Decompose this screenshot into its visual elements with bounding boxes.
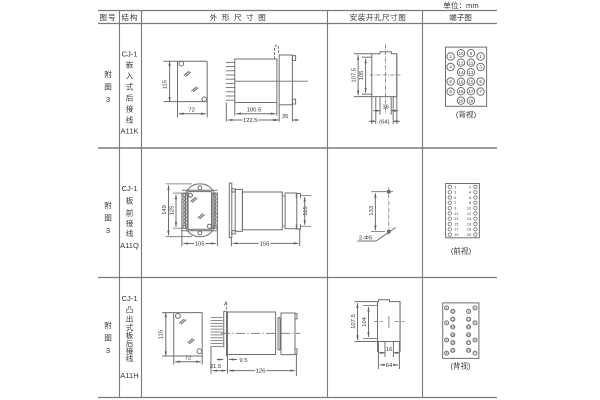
svg-text:CJ-1: CJ-1 <box>121 184 137 193</box>
svg-text:4: 4 <box>469 191 471 195</box>
svg-text:前: 前 <box>126 208 134 218</box>
svg-text:100.5: 100.5 <box>247 108 262 114</box>
svg-text:107.5: 107.5 <box>351 313 357 328</box>
svg-text:14: 14 <box>451 325 455 329</box>
svg-text:CJ-1: CJ-1 <box>121 294 137 303</box>
svg-text:入: 入 <box>126 72 134 81</box>
svg-text:16: 16 <box>386 347 393 353</box>
svg-text:2-Φ5: 2-Φ5 <box>359 235 373 241</box>
svg-text:10: 10 <box>451 310 455 314</box>
svg-text:72: 72 <box>188 108 195 114</box>
svg-text:6: 6 <box>469 196 471 200</box>
svg-text:(前视): (前视) <box>451 246 472 256</box>
svg-text:附: 附 <box>104 321 112 330</box>
svg-text:A11K: A11K <box>120 127 138 136</box>
svg-text:12: 12 <box>459 60 464 65</box>
svg-text:(64): (64) <box>379 119 390 125</box>
svg-text:10: 10 <box>459 51 464 56</box>
svg-text:13: 13 <box>468 70 473 75</box>
svg-text:接: 接 <box>126 218 134 228</box>
svg-text:线: 线 <box>126 228 134 238</box>
svg-text:端子图: 端子图 <box>449 12 472 22</box>
svg-text:31.5: 31.5 <box>210 364 222 370</box>
svg-text:接: 接 <box>126 104 134 114</box>
svg-text:CJ-1: CJ-1 <box>121 50 137 59</box>
svg-text:图: 图 <box>104 214 112 223</box>
svg-text:结构: 结构 <box>121 12 138 22</box>
svg-text:10: 10 <box>467 207 471 211</box>
svg-text:3: 3 <box>106 346 110 355</box>
svg-text:18: 18 <box>451 341 455 345</box>
svg-text:15: 15 <box>454 222 458 226</box>
svg-text:附: 附 <box>104 70 112 79</box>
svg-text:149: 149 <box>162 205 168 215</box>
svg-text:3: 3 <box>454 191 456 195</box>
svg-text:19: 19 <box>468 98 473 103</box>
svg-text:72: 72 <box>185 355 192 361</box>
svg-text:11: 11 <box>467 317 470 321</box>
svg-text:107.5: 107.5 <box>352 67 358 82</box>
svg-text:12: 12 <box>467 212 471 216</box>
svg-text:156: 156 <box>260 242 271 248</box>
svg-text:5: 5 <box>454 196 456 200</box>
svg-text:11: 11 <box>469 60 474 65</box>
svg-text:附: 附 <box>104 201 112 210</box>
svg-text:16: 16 <box>382 104 389 110</box>
svg-text:19: 19 <box>467 349 471 353</box>
svg-text:105: 105 <box>359 70 365 81</box>
svg-text:17: 17 <box>467 341 471 345</box>
svg-text:凸: 凸 <box>126 305 134 314</box>
svg-text:(背视): (背视) <box>450 361 471 371</box>
svg-text:126: 126 <box>256 369 267 375</box>
svg-text:16: 16 <box>467 222 471 226</box>
svg-text:9.5: 9.5 <box>239 358 248 364</box>
svg-text:104: 104 <box>362 316 368 327</box>
svg-text:板: 板 <box>126 196 134 206</box>
svg-text:A11Q: A11Q <box>120 241 139 250</box>
svg-text:1: 1 <box>454 185 456 189</box>
svg-text:9: 9 <box>454 207 456 211</box>
svg-text:11: 11 <box>454 212 458 216</box>
svg-text:133: 133 <box>369 205 375 216</box>
svg-text:7: 7 <box>454 201 456 205</box>
svg-text:16: 16 <box>451 333 455 337</box>
svg-text:18: 18 <box>459 89 464 94</box>
svg-text:115: 115 <box>162 79 168 89</box>
svg-text:20: 20 <box>459 98 464 103</box>
svg-text:15: 15 <box>467 333 471 337</box>
svg-text:122.5: 122.5 <box>243 118 258 124</box>
svg-text:后: 后 <box>126 93 134 103</box>
svg-text:出: 出 <box>126 313 134 323</box>
svg-text:115: 115 <box>303 206 309 216</box>
svg-text:图: 图 <box>104 334 112 343</box>
svg-text:16: 16 <box>459 79 464 84</box>
svg-text:15: 15 <box>468 79 473 84</box>
svg-text:安装开孔尺寸图: 安装开孔尺寸图 <box>350 12 407 22</box>
svg-text:嵌: 嵌 <box>126 61 134 70</box>
svg-text:17: 17 <box>454 228 458 232</box>
svg-text:单位：mm: 单位：mm <box>443 0 478 10</box>
svg-text:式: 式 <box>126 82 134 92</box>
svg-text:线: 线 <box>126 115 134 125</box>
svg-text:14: 14 <box>459 70 464 75</box>
svg-text:3: 3 <box>106 226 110 235</box>
svg-text:18: 18 <box>467 228 471 232</box>
svg-text:外形尺寸图: 外形尺寸图 <box>210 12 270 22</box>
svg-text:2: 2 <box>469 185 471 189</box>
svg-text:图: 图 <box>104 83 112 92</box>
svg-text:125: 125 <box>169 205 175 216</box>
svg-text:105: 105 <box>195 242 206 248</box>
svg-text:35: 35 <box>282 114 289 120</box>
svg-text:17: 17 <box>468 89 473 94</box>
svg-text:线: 线 <box>126 353 134 363</box>
svg-text:20: 20 <box>467 233 471 237</box>
svg-text:14: 14 <box>467 217 471 221</box>
svg-text:12: 12 <box>451 317 455 321</box>
svg-text:(背视): (背视) <box>456 109 477 119</box>
svg-text:115: 115 <box>159 329 165 339</box>
svg-text:20: 20 <box>451 349 455 353</box>
svg-text:8: 8 <box>469 201 471 205</box>
svg-text:图号: 图号 <box>99 13 116 22</box>
svg-text:A11H: A11H <box>120 371 138 380</box>
svg-text:13: 13 <box>454 217 458 221</box>
svg-text:64: 64 <box>386 363 393 369</box>
svg-text:3: 3 <box>106 95 110 104</box>
svg-text:13: 13 <box>467 325 471 329</box>
svg-text:19: 19 <box>454 233 458 237</box>
